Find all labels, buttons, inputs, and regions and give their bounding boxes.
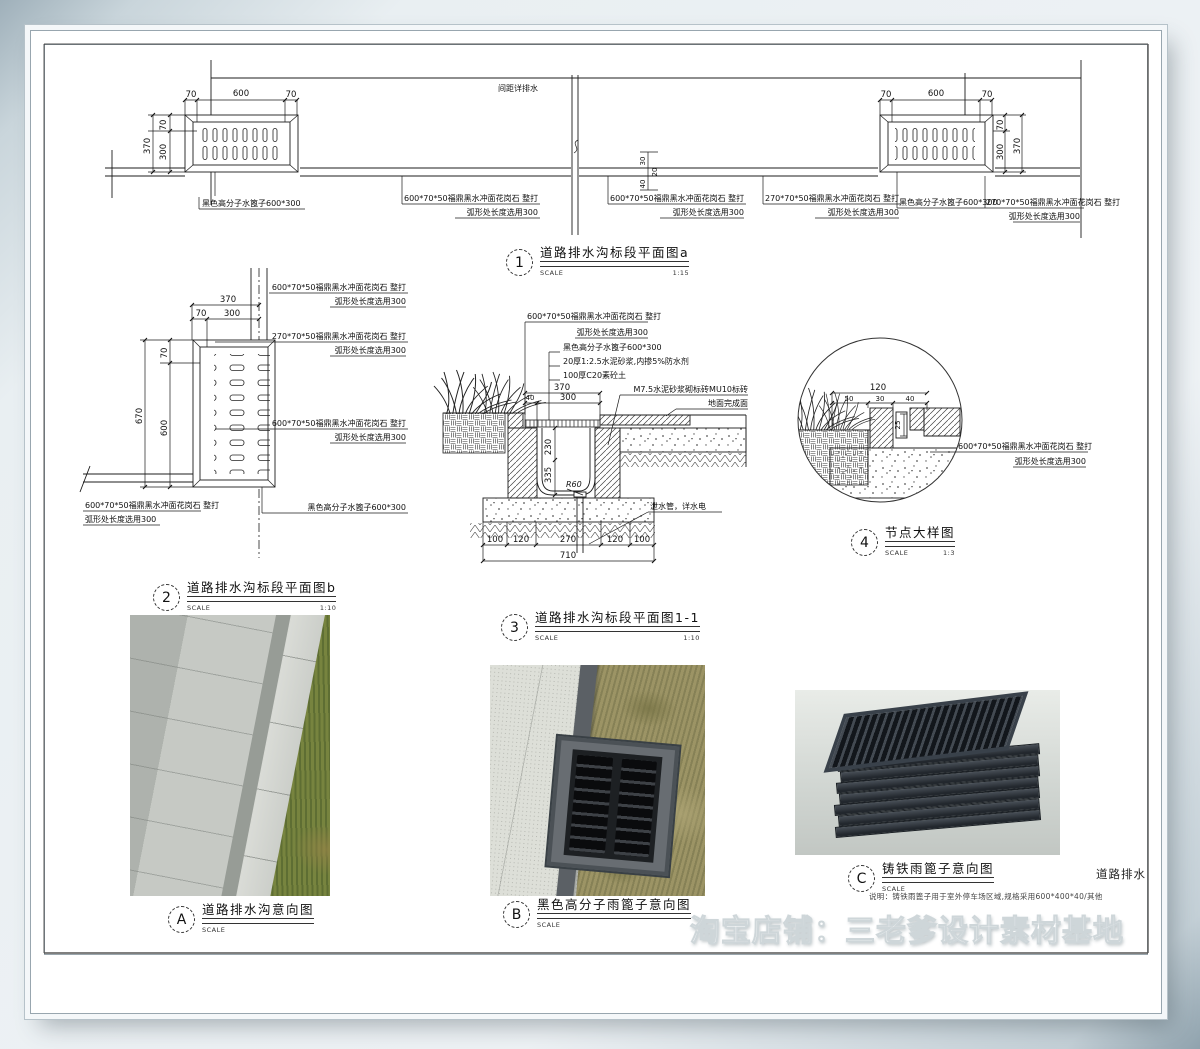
material-label: 600*70*50福鼎黑水冲面花岗石 整打 xyxy=(527,311,661,321)
dim-text: 25 xyxy=(894,421,902,430)
caption-photo-a: A 道路排水沟意向图 SCALE xyxy=(168,903,314,934)
caption-detail-2: 2 道路排水沟标段平面图b SCALE1:10 xyxy=(153,581,336,612)
dim-text: 50 xyxy=(845,395,854,403)
photo-b-grate-column xyxy=(613,759,657,858)
scale-label: SCALE xyxy=(537,921,560,929)
dim-text: 710 xyxy=(560,551,576,561)
material-label: 弧形处长度选用300 xyxy=(828,207,899,217)
photo-black-grate xyxy=(490,665,705,896)
photo-cast-iron-grates xyxy=(795,690,1060,855)
dim-text: 230 xyxy=(544,439,554,455)
scale-value: 1:15 xyxy=(673,269,690,277)
dim-text: 30 xyxy=(639,157,647,166)
detail-title: 道路排水沟标段平面图1-1 xyxy=(535,611,700,625)
material-label: 泄水管，详水电 xyxy=(650,501,706,511)
material-label: 270*70*50福鼎黑水冲面花岗石 整打 xyxy=(272,331,406,341)
material-label: 600*70*50福鼎黑水冲面花岗石 整打 xyxy=(85,500,219,510)
detail2-linework: 370 70 300 70 600 670 600*70*50福鼎黑水冲面花岗石… xyxy=(80,268,408,558)
dim-text: 120 xyxy=(607,535,623,545)
material-label: 黑色高分子水篦子600*300 xyxy=(307,502,406,512)
detail3-linework: 370 40 300 230 335 R60 100 120 270 120 1… xyxy=(434,311,748,563)
scale-label: SCALE xyxy=(202,926,225,934)
dim-text: 70 xyxy=(186,90,197,100)
detail-number-badge: A xyxy=(168,906,195,933)
taobao-watermark: 淘宝店铺：三老爹设计素材基地 xyxy=(690,906,1124,950)
material-label: 弧形处长度选用300 xyxy=(1015,456,1086,466)
caption-detail-3: 3 道路排水沟标段平面图1-1 SCALE1:10 xyxy=(501,611,700,642)
caption-detail-1: 1 道路排水沟标段平面图a SCALE1:15 xyxy=(506,246,689,277)
dim-text: 70 xyxy=(160,348,170,359)
dim-text: 300 xyxy=(996,144,1006,160)
detail4-linework: 120 50 30 40 25 600*70*50福鼎黑水冲面花岗石 整打 弧形… xyxy=(790,338,1093,502)
dim-text: 30 xyxy=(876,395,885,403)
dim-text: 100 xyxy=(634,535,650,545)
dim-text: 40 xyxy=(526,394,535,402)
title-rule xyxy=(540,261,689,267)
detail1-linework: 70 600 70 70 600 70 370 70 300 370 70 30… xyxy=(105,60,1120,238)
photo-b-grate xyxy=(564,749,663,862)
detail-title: 节点大样图 xyxy=(885,526,955,540)
material-label: 弧形处长度选用300 xyxy=(1009,211,1080,221)
material-label: 600*70*50福鼎黑水冲面花岗石 整打 xyxy=(272,282,406,292)
scale-value: 1:3 xyxy=(943,549,955,557)
detail-title: 黑色高分子雨篦子意向图 xyxy=(537,898,691,912)
material-label: 弧形处长度选用300 xyxy=(85,514,156,524)
dim-text: 40 xyxy=(906,395,915,403)
dim-text: 600 xyxy=(160,420,170,436)
detail-number-badge: 4 xyxy=(851,529,878,556)
material-label: 弧形处长度选用300 xyxy=(673,207,744,217)
material-label: 600*70*50福鼎黑水冲面花岗石 整打 xyxy=(404,193,538,203)
detail-title: 道路排水沟意向图 xyxy=(202,903,314,917)
detail-number-badge: 2 xyxy=(153,584,180,611)
title-rule xyxy=(885,541,955,547)
dim-text: 70 xyxy=(881,90,892,100)
photo-drain-channel xyxy=(130,615,330,896)
dim-text: 600 xyxy=(928,89,944,99)
scale-value: 1:10 xyxy=(320,604,337,612)
caption-detail-4: 4 节点大样图 SCALE1:3 xyxy=(851,526,955,557)
material-label: 270*70*50福鼎黑水冲面花岗石 整打 xyxy=(765,193,899,203)
dim-text: 270 xyxy=(560,535,576,545)
caption-photo-b: B 黑色高分子雨篦子意向图 SCALE xyxy=(503,898,691,929)
dim-text: 335 xyxy=(544,467,554,483)
dim-text: R60 xyxy=(566,480,582,489)
dim-text: 370 xyxy=(554,383,570,393)
sheet-edge-label: 道路排水 xyxy=(1096,866,1146,882)
dim-text: 370 xyxy=(143,138,153,154)
dim-text: 120 xyxy=(870,383,886,393)
material-label: 黑色高分子水篦子600*300 xyxy=(202,198,301,208)
detail-title: 道路排水沟标段平面图a xyxy=(540,246,689,260)
material-label: 600*70*50福鼎黑水冲面花岗石 整打 xyxy=(610,193,744,203)
photo-b-grate-frame xyxy=(547,736,680,876)
detail-title: 道路排水沟标段平面图b xyxy=(187,581,336,595)
dim-text: 70 xyxy=(286,90,297,100)
dim-text: 600 xyxy=(233,89,249,99)
scale-label: SCALE xyxy=(535,634,558,642)
dim-text: 370 xyxy=(1013,138,1023,154)
caption-photo-c-note: 说明：铸铁雨篦子用于室外停车场区域,规格采用600*400*40/其他 xyxy=(869,891,1103,902)
material-label: 600*70*50福鼎黑水冲面花岗石 整打 xyxy=(958,441,1092,451)
dim-text: 120 xyxy=(513,535,529,545)
material-label: 弧形处长度选用300 xyxy=(467,207,538,217)
caption-photo-c: C 铸铁雨篦子意向图 SCALE xyxy=(848,862,994,893)
dim-text: 40 xyxy=(639,180,647,189)
title-rule xyxy=(537,913,691,919)
photo-b-grate-column xyxy=(569,755,613,854)
material-label: 600*70*50福鼎黑水冲面花岗石 整打 xyxy=(272,418,406,428)
material-label: 黑色高分子水篦子600*300 xyxy=(899,197,998,207)
material-label: 弧形处长度选用300 xyxy=(335,345,406,355)
dim-text: 100 xyxy=(487,535,503,545)
title-rule xyxy=(187,596,336,602)
detail-number-badge: 1 xyxy=(506,249,533,276)
dim-text: 70 xyxy=(982,90,993,100)
dim-text: 670 xyxy=(135,408,145,424)
material-label: 弧形处长度选用300 xyxy=(335,432,406,442)
material-label: 地面完成面 xyxy=(708,398,748,408)
dim-text: 300 xyxy=(159,144,169,160)
detail-number-badge: 3 xyxy=(501,614,528,641)
material-label: M7.5水泥砂浆砌标砖MU10标砖 xyxy=(633,384,748,394)
material-label: 弧形处长度选用300 xyxy=(577,327,648,337)
note-text: 间距详排水 xyxy=(498,83,538,93)
dim-text: 300 xyxy=(224,309,240,319)
material-label: 270*70*50福鼎黑水冲面花岗石 整打 xyxy=(986,197,1120,207)
title-rule xyxy=(882,877,994,883)
material-label: 黑色高分子水篦子600*300 xyxy=(563,342,662,352)
scale-label: SCALE xyxy=(885,549,908,557)
material-label: 20厚1:2.5水泥砂浆,内掺5%防水剂 xyxy=(563,356,689,366)
scale-label: SCALE xyxy=(540,269,563,277)
dim-text: 20 xyxy=(651,168,659,177)
scale-value: 1:10 xyxy=(683,634,700,642)
detail-number-badge: B xyxy=(503,901,530,928)
material-label: 100厚C20素砼土 xyxy=(563,370,626,380)
dim-text: 70 xyxy=(196,309,207,319)
title-rule xyxy=(202,918,314,924)
detail-number-badge: C xyxy=(848,865,875,892)
detail-title: 铸铁雨篦子意向图 xyxy=(882,862,994,876)
scale-label: SCALE xyxy=(187,604,210,612)
dim-text: 70 xyxy=(159,120,169,131)
material-label: 弧形处长度选用300 xyxy=(335,296,406,306)
title-rule xyxy=(535,626,700,632)
dim-text: 370 xyxy=(220,295,236,305)
dim-text: 300 xyxy=(560,393,576,403)
dim-text: 70 xyxy=(996,120,1006,131)
